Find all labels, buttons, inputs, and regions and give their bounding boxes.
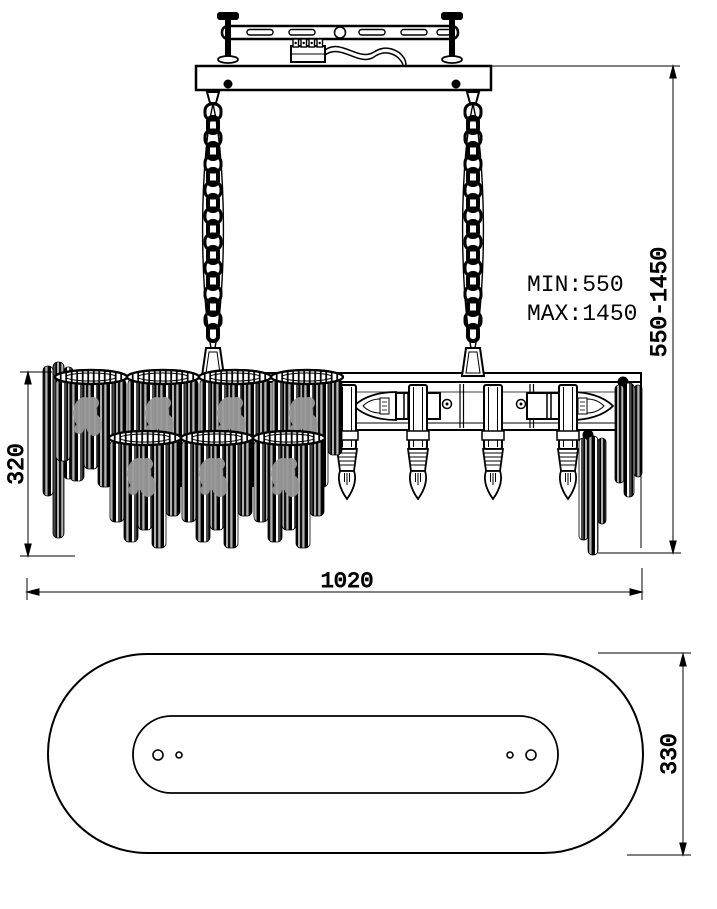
- mounting-hole-left-small: [176, 752, 182, 758]
- min-height-label: MIN:550: [527, 272, 624, 298]
- depth-label: 330: [657, 733, 683, 774]
- candle-socket-2: [407, 385, 429, 499]
- candle-socket-3: [482, 385, 504, 499]
- mounting-hole-right-large: [526, 750, 536, 760]
- inner-mounting-plate: [133, 716, 558, 793]
- candle-socket-4: [557, 385, 579, 499]
- suspension-range-label: 550-1450: [647, 247, 673, 357]
- mounting-hole-left-large: [153, 750, 163, 760]
- max-height-label: MAX:1450: [527, 301, 637, 327]
- screw-right: [517, 400, 526, 409]
- chandelier-technical-drawing: 320 550-1450 MIN:550 MAX:1450 1020: [0, 0, 717, 909]
- width-label: 1020: [321, 569, 374, 594]
- screw-left: [443, 400, 452, 409]
- drawing-svg: 320 550-1450 MIN:550 MAX:1450 1020: [0, 0, 717, 909]
- mounting-hole-right-small: [507, 752, 513, 758]
- top-view: 330: [48, 653, 691, 855]
- body-height-label: 320: [4, 443, 30, 484]
